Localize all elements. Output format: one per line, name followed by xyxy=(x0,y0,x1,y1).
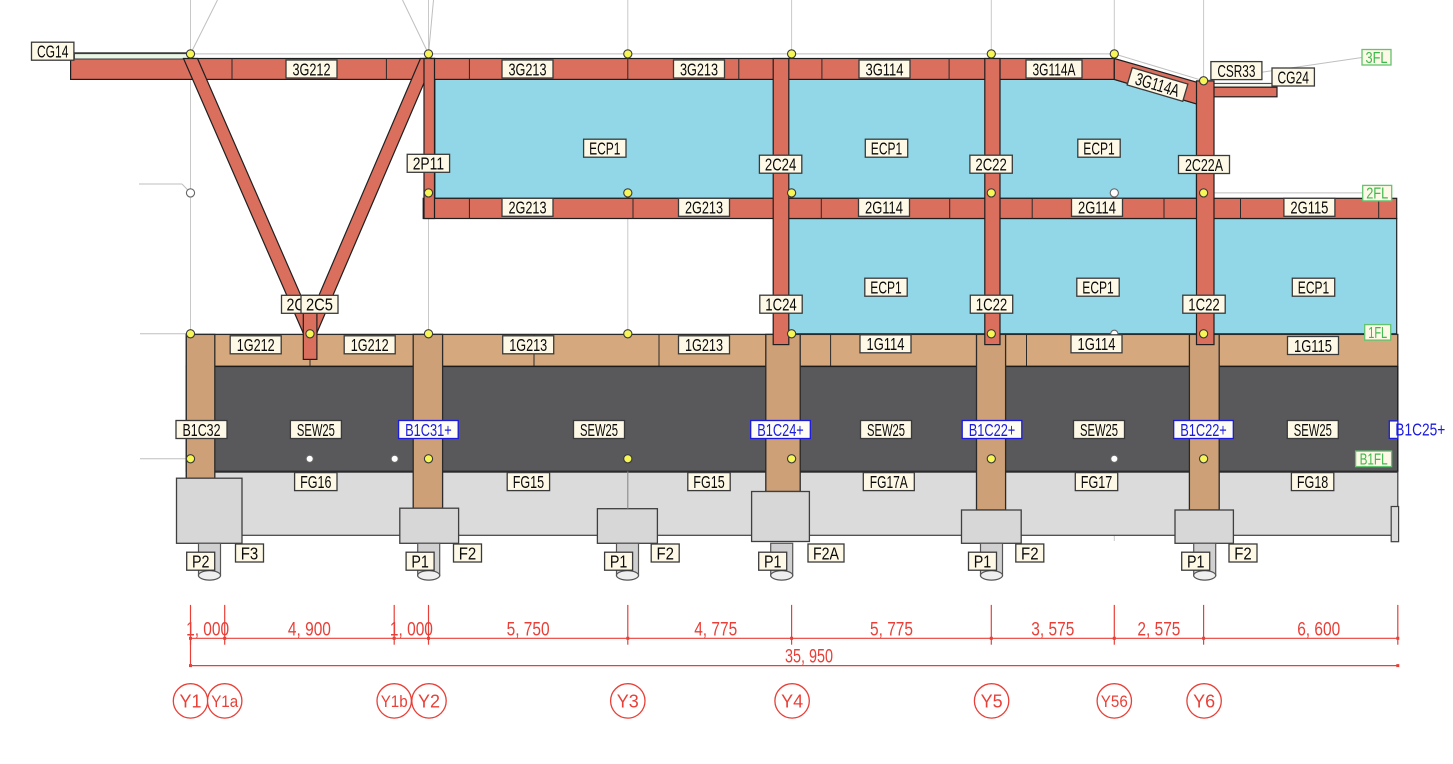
svg-text:3, 575: 3, 575 xyxy=(1031,619,1074,640)
svg-text:1G114: 1G114 xyxy=(867,334,905,354)
svg-text:Y3: Y3 xyxy=(617,691,639,712)
svg-text:1C24: 1C24 xyxy=(765,295,796,315)
svg-text:P2: P2 xyxy=(192,552,210,572)
svg-text:SEW25: SEW25 xyxy=(297,420,335,440)
svg-text:SEW25: SEW25 xyxy=(1080,420,1118,440)
svg-text:ECP1: ECP1 xyxy=(871,139,902,159)
svg-text:Y1a: Y1a xyxy=(211,693,239,711)
svg-text:CSR33: CSR33 xyxy=(1217,61,1255,81)
svg-text:3G114A: 3G114A xyxy=(1033,59,1076,79)
svg-text:1G212: 1G212 xyxy=(351,335,389,355)
svg-text:F3: F3 xyxy=(241,543,259,563)
svg-text:P1: P1 xyxy=(1187,552,1205,572)
svg-text:B1C22+: B1C22+ xyxy=(969,420,1016,440)
svg-text:Y56: Y56 xyxy=(1101,693,1128,711)
svg-text:ECP1: ECP1 xyxy=(589,139,620,159)
svg-text:FG17: FG17 xyxy=(1081,472,1112,492)
svg-text:B1C25+: B1C25+ xyxy=(1395,420,1445,440)
svg-text:Y6: Y6 xyxy=(1193,691,1215,712)
svg-text:Y4: Y4 xyxy=(781,691,803,712)
svg-text:Y1b: Y1b xyxy=(381,693,408,711)
svg-text:Y1: Y1 xyxy=(180,691,202,712)
svg-text:B1C31+: B1C31+ xyxy=(405,420,452,440)
svg-text:P1: P1 xyxy=(974,552,992,572)
svg-text:SEW25: SEW25 xyxy=(1294,420,1332,440)
svg-text:1G212: 1G212 xyxy=(237,335,275,355)
svg-text:2P11: 2P11 xyxy=(413,154,444,174)
svg-text:4, 775: 4, 775 xyxy=(694,619,737,640)
svg-text:1, 000: 1, 000 xyxy=(390,619,433,640)
svg-text:P1: P1 xyxy=(764,552,782,572)
svg-text:35, 950: 35, 950 xyxy=(785,647,833,668)
svg-text:ECP1: ECP1 xyxy=(870,278,901,298)
svg-text:Y5: Y5 xyxy=(981,691,1003,712)
svg-text:1, 000: 1, 000 xyxy=(186,619,229,640)
svg-text:4, 900: 4, 900 xyxy=(288,619,331,640)
svg-text:2G213: 2G213 xyxy=(685,198,723,218)
svg-text:F2: F2 xyxy=(656,543,674,563)
svg-text:3G213: 3G213 xyxy=(509,59,547,79)
svg-text:F2A: F2A xyxy=(813,543,839,563)
svg-text:1C22: 1C22 xyxy=(1188,295,1219,315)
svg-text:FG15: FG15 xyxy=(693,472,724,492)
svg-text:2C22: 2C22 xyxy=(975,155,1006,175)
svg-text:B1C22+: B1C22+ xyxy=(1180,420,1227,440)
svg-text:F2: F2 xyxy=(1234,543,1252,563)
svg-text:ECP1: ECP1 xyxy=(1082,278,1113,298)
svg-text:SEW25: SEW25 xyxy=(580,420,618,440)
svg-text:FG18: FG18 xyxy=(1297,472,1328,492)
svg-text:Y2: Y2 xyxy=(418,691,440,712)
svg-text:2G114: 2G114 xyxy=(865,198,903,218)
svg-text:6, 600: 6, 600 xyxy=(1297,619,1340,640)
svg-text:CG24: CG24 xyxy=(1278,67,1309,87)
svg-text:5, 775: 5, 775 xyxy=(870,619,913,640)
svg-text:2G114: 2G114 xyxy=(1078,198,1116,218)
svg-text:B1FL: B1FL xyxy=(1360,451,1388,468)
svg-text:1G114: 1G114 xyxy=(1078,334,1116,354)
svg-text:FG16: FG16 xyxy=(300,472,331,492)
svg-text:2C24: 2C24 xyxy=(765,155,796,175)
svg-text:2C22A: 2C22A xyxy=(1185,155,1223,175)
svg-text:CG14: CG14 xyxy=(37,42,68,62)
svg-text:1G213: 1G213 xyxy=(509,335,547,355)
svg-text:P1: P1 xyxy=(411,552,429,572)
svg-text:FG15: FG15 xyxy=(513,472,544,492)
svg-text:1G213: 1G213 xyxy=(685,335,723,355)
svg-text:SEW25: SEW25 xyxy=(867,420,905,440)
svg-text:F2: F2 xyxy=(1021,543,1039,563)
svg-text:2FL: 2FL xyxy=(1366,186,1388,203)
svg-text:2, 575: 2, 575 xyxy=(1137,619,1180,640)
svg-text:3G213: 3G213 xyxy=(680,59,718,79)
svg-text:5, 750: 5, 750 xyxy=(507,619,550,640)
svg-text:3G212: 3G212 xyxy=(293,59,331,79)
svg-text:ECP1: ECP1 xyxy=(1083,139,1114,159)
svg-text:FG17A: FG17A xyxy=(870,472,908,492)
svg-text:F2: F2 xyxy=(459,543,477,563)
svg-text:2G115: 2G115 xyxy=(1290,198,1328,218)
svg-text:1G115: 1G115 xyxy=(1294,336,1332,356)
svg-text:P1: P1 xyxy=(610,552,628,572)
svg-text:2G213: 2G213 xyxy=(509,198,547,218)
svg-text:ECP1: ECP1 xyxy=(1298,278,1329,298)
svg-text:1C22: 1C22 xyxy=(976,295,1007,315)
svg-text:B1C32: B1C32 xyxy=(183,420,221,440)
svg-text:3G114: 3G114 xyxy=(866,59,904,79)
svg-text:2C5: 2C5 xyxy=(306,295,333,315)
svg-text:3FL: 3FL xyxy=(1366,50,1388,67)
svg-text:1FL: 1FL xyxy=(1368,325,1387,342)
svg-text:B1C24+: B1C24+ xyxy=(757,420,804,440)
